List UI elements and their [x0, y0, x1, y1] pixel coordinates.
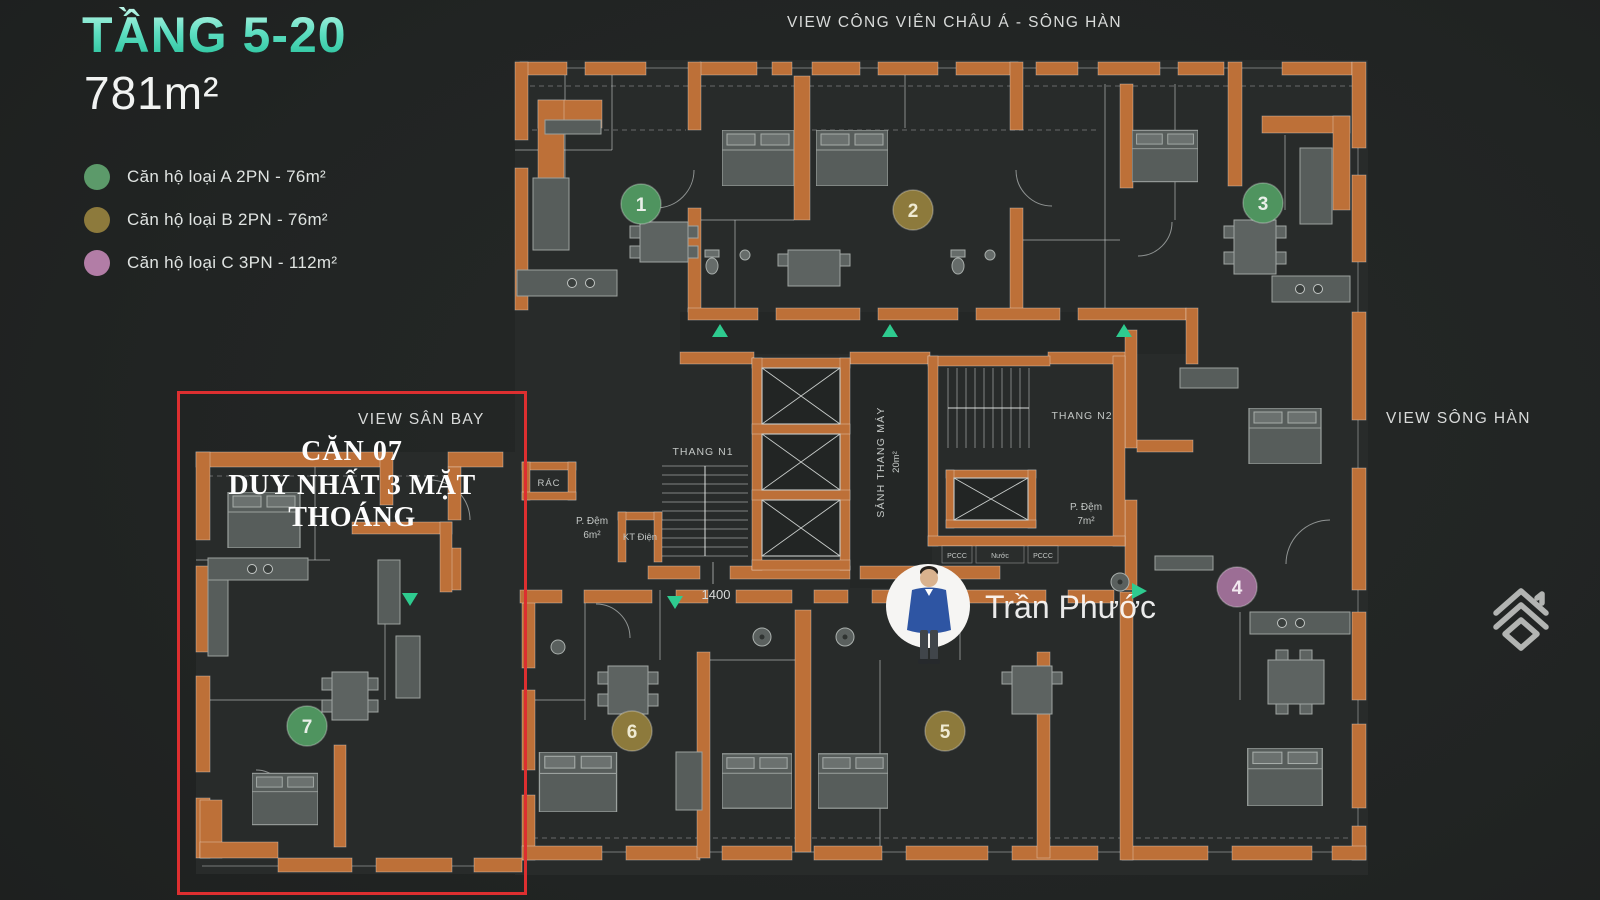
- highlight-title: CĂN 07: [180, 436, 524, 468]
- legend-dot-a-icon: [84, 164, 110, 190]
- legend-dot-c-icon: [84, 250, 110, 276]
- svg-text:6: 6: [627, 722, 638, 743]
- unit-badge-6: 6: [612, 711, 652, 751]
- buffer2-label: P. Đệm: [1070, 502, 1102, 513]
- legend-item-c: Căn hộ loại C 3PN - 112m²: [84, 250, 337, 276]
- legend-label-b: Căn hộ loại B 2PN - 76m²: [127, 210, 328, 230]
- floorplan-page: { "header": { "floor_range": "TẦNG 5-20"…: [0, 0, 1600, 900]
- legend: Căn hộ loại A 2PN - 76m² Căn hộ loại B 2…: [84, 164, 337, 293]
- trash-label: RÁC: [537, 478, 560, 489]
- unit-badge-2: 2: [893, 190, 933, 230]
- legend-item-b: Căn hộ loại B 2PN - 76m²: [84, 207, 337, 233]
- agent-name: Trần Phước: [985, 589, 1156, 625]
- water-label: Nước: [991, 553, 1009, 560]
- page-title: TẦNG 5-20: [82, 6, 347, 64]
- svg-text:3: 3: [1258, 194, 1269, 215]
- view-caption-right: VIEW SÔNG HÀN: [1386, 410, 1531, 428]
- brand-logo-icon: [1496, 591, 1546, 648]
- unit-badge-1: 1: [621, 184, 661, 224]
- svg-text:4: 4: [1232, 578, 1243, 599]
- view-caption-top: VIEW CÔNG VIÊN CHÂU Á - SÔNG HÀN: [787, 14, 1122, 32]
- buffer1-label: P. Đệm: [576, 516, 608, 527]
- svg-text:2: 2: [908, 201, 919, 222]
- legend-label-a: Căn hộ loại A 2PN - 76m²: [127, 167, 326, 187]
- fire2-label: PCCC: [1033, 553, 1053, 560]
- buffer2-area-label: 7m²: [1077, 516, 1095, 527]
- legend-dot-b-icon: [84, 207, 110, 233]
- lobby-label: SẢNH THANG MÁY: [874, 406, 887, 517]
- unit7-highlight-box: VIEW SÂN BAY CĂN 07 DUY NHẤT 3 MẶT THOÁN…: [177, 391, 527, 895]
- floor-area: 781m²: [84, 66, 219, 120]
- svg-text:1: 1: [636, 195, 647, 216]
- lobby-area-label: 20m²: [891, 451, 902, 473]
- stair1-label: THANG N1: [672, 446, 733, 458]
- highlight-subtitle: DUY NHẤT 3 MẶT THOÁNG: [180, 470, 524, 534]
- fire1-label: PCCC: [947, 553, 967, 560]
- stair2-label: THANG N2: [1051, 410, 1112, 422]
- legend-label-c: Căn hộ loại C 3PN - 112m²: [127, 253, 337, 273]
- svg-text:5: 5: [940, 722, 951, 743]
- view-caption-airport: VIEW SÂN BAY: [358, 411, 485, 429]
- dimension-label: 1400: [702, 587, 731, 602]
- electrical-label: KT Điện: [623, 532, 657, 543]
- unit-badge-4: 4: [1217, 567, 1257, 607]
- buffer1-area-label: 6m²: [583, 530, 601, 541]
- legend-item-a: Căn hộ loại A 2PN - 76m²: [84, 164, 337, 190]
- unit-badge-3: 3: [1243, 183, 1283, 223]
- unit-badge-5: 5: [925, 711, 965, 751]
